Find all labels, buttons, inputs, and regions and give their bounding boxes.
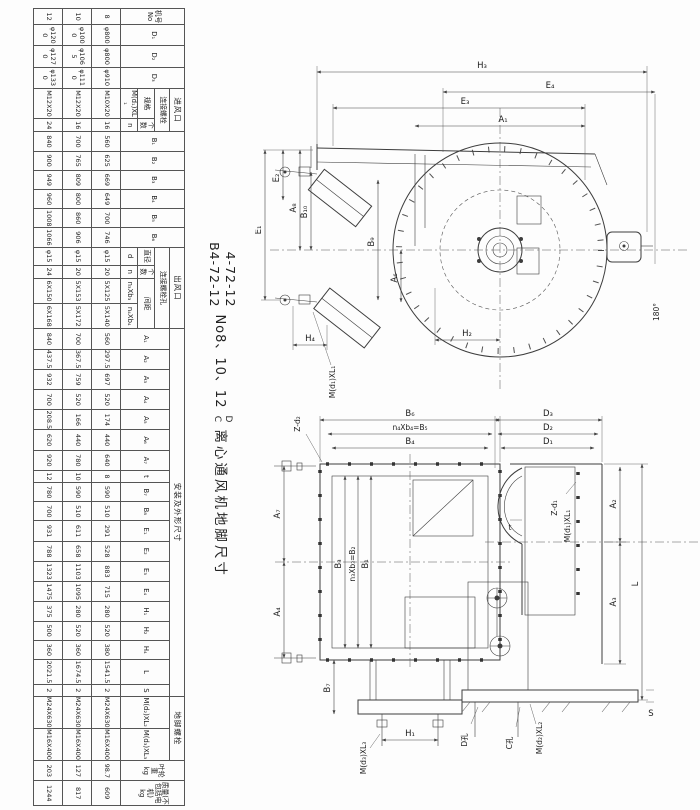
table-cell: 817 — [63, 781, 92, 806]
dim-label-b4: B₄ — [405, 437, 415, 447]
header-d: d — [121, 247, 138, 265]
table-cell: 700 — [34, 502, 63, 521]
table-cell: 715 — [92, 582, 121, 602]
table-cell: 6X168 — [34, 304, 63, 329]
header-dia: 直径 — [138, 247, 155, 265]
table-cell: φ15 — [63, 247, 92, 265]
header-inlet-bolts: 连接螺栓 — [154, 88, 169, 131]
side-view-inlet — [485, 464, 698, 664]
header-a5: A₅ — [121, 410, 169, 430]
dim-label-h2: H₂ — [462, 329, 472, 339]
table-cell: 700 — [63, 132, 92, 151]
table-cell: φ1330 — [34, 67, 63, 88]
angle-label-180: 180° — [652, 303, 661, 321]
table-cell: φ800 — [92, 46, 121, 67]
table-cell: 1475 — [34, 582, 63, 602]
header-m-d1: M(d₁)XL₁ — [121, 88, 138, 118]
section-outlet: 出风口 — [169, 247, 184, 329]
variant-letters: D C — [211, 415, 233, 422]
table-cell: 127 — [63, 761, 92, 781]
header-h4: H₄ — [121, 640, 169, 659]
table-cell: 932 — [34, 369, 63, 389]
table-cell: 611 — [63, 521, 92, 541]
table-cell: 12 — [34, 9, 63, 25]
header-n4b4: n₄Xb₄ — [121, 304, 138, 329]
table-cell: 800 — [63, 189, 92, 208]
header-mass: 质量(不包括电机)kg — [121, 781, 185, 806]
table-cell: 2 — [34, 685, 63, 696]
table-cell: 10 — [63, 9, 92, 25]
table-cell: 10 — [63, 470, 92, 482]
table-cell: 560 — [92, 132, 121, 151]
dim-label-b7: B₇ — [323, 683, 333, 693]
table-cell: φ15 — [92, 247, 121, 265]
dim-label-a3: A₃ — [609, 597, 619, 606]
bearing-block-and-base: D孔 C孔 M(d₂)XL₂ S — [460, 582, 654, 754]
table-cell: M16X400 — [34, 728, 63, 760]
dim-label-a1: A₁ — [498, 115, 507, 125]
table-cell: 883 — [92, 561, 121, 581]
table-cell: 5X153 — [63, 278, 92, 303]
dim-label-b2: n₃Xb₃=B₂ — [348, 546, 357, 581]
hole-label-d: D孔 — [460, 733, 469, 747]
header-d1: D₁ — [121, 25, 185, 46]
header-a3: A₃ — [121, 369, 169, 389]
table-cell: M12X20 — [63, 88, 92, 118]
bolt-label-md1: M(d₁)XL₁ — [328, 366, 337, 398]
table-cell: φ1065 — [63, 46, 92, 67]
table-cell: 590 — [92, 483, 121, 502]
header-b1: B₁ — [121, 132, 185, 151]
header-a2: A₂ — [121, 349, 169, 369]
fan-installation-drawing: B₆ n₄Xb₄=B₅ B₄ Z-d₂ A₇ A₄ B₃ n₃Xb₃=B₂ B₁… — [270, 402, 700, 802]
dim-label-d1: D₁ — [543, 437, 553, 447]
support-legs-foundation-left: B₇ H₁ M(d₃)XL₃ — [323, 660, 462, 774]
table-cell: 590 — [63, 483, 92, 502]
table-cell: 1066 — [34, 228, 63, 247]
header-e4: E₄ — [121, 582, 169, 602]
hole-label-c: C孔 — [505, 736, 514, 749]
foundation-dimension-table: 机号No D₁ D₂ D₃ 进风口 B₁ B₂ B₃ B₄ B₅ B₆ 出风口 … — [33, 8, 185, 806]
table-cell: 20 — [63, 265, 92, 278]
table-cell: 24 — [34, 119, 63, 132]
fan-model-1: 4-72-12 — [222, 252, 238, 308]
table-cell: 12 — [34, 470, 63, 482]
dim-label-b6: B₆ — [405, 409, 415, 419]
table-cell: 280 — [63, 602, 92, 621]
fan-model-2: B4-72-12 — [206, 242, 222, 307]
table-row-no8: 8φ800φ800φ910M10X2016560625669649700746φ… — [92, 9, 121, 806]
table-cell: 5X172 — [63, 304, 92, 329]
table-cell: 5X125 — [92, 278, 121, 303]
header-a6: A₆ — [121, 430, 169, 450]
table-cell: φ1110 — [63, 67, 92, 88]
table-cell: 2 — [92, 685, 121, 696]
table-cell: 375 — [34, 602, 63, 621]
table-cell: 788 — [34, 541, 63, 561]
table-cell: 2021.5 — [34, 659, 63, 684]
header-b6: B₆ — [121, 228, 185, 247]
bolt-label-md3: M(d₃)XL₃ — [359, 742, 368, 774]
table-cell: 780 — [63, 450, 92, 470]
header-h1: H₁ — [121, 602, 169, 621]
dim-label-d3: D₃ — [543, 409, 553, 419]
table-cell: M16X400 — [63, 728, 92, 760]
table-cell: 960 — [34, 189, 63, 208]
fan-size-list: No8、10、12 — [213, 314, 232, 408]
header-n: n — [121, 119, 138, 132]
dim-label-a2: A₂ — [609, 499, 619, 508]
table-cell: M24X630 — [92, 696, 121, 728]
page-title: 离心通风机地脚尺寸 — [212, 429, 232, 578]
table-cell: 1095 — [63, 582, 92, 602]
table-cell: 6X150 — [34, 278, 63, 303]
table-cell: 700 — [34, 390, 63, 410]
table-cell: 291 — [92, 521, 121, 541]
table-cell: 520 — [63, 390, 92, 410]
table-cell: 203 — [34, 761, 63, 781]
dim-label-b10: B₁₀ — [300, 205, 310, 218]
dim-label-e3: E₃ — [461, 97, 470, 107]
table-cell: 2 — [63, 685, 92, 696]
table-cell: φ1000 — [63, 25, 92, 46]
table-cell: 649 — [92, 189, 121, 208]
table-cell: 520 — [63, 621, 92, 640]
header-l: L — [121, 659, 169, 684]
table-cell: 640 — [92, 450, 121, 470]
table-cell: 840 — [34, 132, 63, 151]
table-cell: 746 — [92, 228, 121, 247]
table-cell: 560 — [92, 329, 121, 349]
table-cell: 16 — [92, 119, 121, 132]
table-cell: 765 — [63, 151, 92, 170]
fan-scroll-side-view-drawing: H₃ E₄ E₃ A₁ E₂ A₈ E₁ B₁₀ B₉ A₆ H₄ M(d₁)X… — [255, 50, 700, 400]
header-m-d3: M(d₃)XL₃ — [121, 728, 169, 760]
dim-label-l: L — [631, 581, 641, 586]
table-cell: 510 — [92, 502, 121, 521]
bolt-label-md1-b: M(d₁)XL₁ — [563, 510, 572, 542]
table-cell: 1541.5 — [92, 659, 121, 684]
header-e3: E₃ — [121, 561, 169, 581]
header-b5: B₅ — [121, 209, 185, 228]
table-cell: 1244 — [34, 781, 63, 806]
table-cell: 174 — [92, 410, 121, 430]
section-inlet: 进风口 — [169, 88, 184, 131]
table-cell: 840 — [34, 329, 63, 349]
table-cell: 920 — [34, 450, 63, 470]
header-outlet-holes: 连接螺栓孔 — [154, 247, 169, 329]
table-cell: φ1200 — [34, 25, 63, 46]
table-cell: 5X140 — [92, 304, 121, 329]
header-spec: 规格 — [138, 88, 155, 118]
header-s: S — [121, 685, 169, 696]
header-a1: A₁ — [121, 329, 169, 349]
table-cell: 906 — [63, 228, 92, 247]
table-cell: 520 — [92, 621, 121, 640]
header-b4: B₄ — [121, 189, 185, 208]
hole-label-zd1: Z-d₁ — [550, 500, 559, 515]
table-cell: 700 — [63, 329, 92, 349]
header-t: t — [121, 470, 169, 482]
table-cell: 510 — [63, 502, 92, 521]
dim-label-t: t — [509, 523, 512, 532]
table-cell: 380 — [92, 640, 121, 659]
table-cell: 98.7 — [92, 761, 121, 781]
table-cell: 437.5 — [34, 349, 63, 369]
table-cell: M24X630 — [34, 696, 63, 728]
scroll-housing — [270, 108, 687, 392]
table-cell: 900 — [34, 151, 63, 170]
dim-label-s: S — [648, 709, 653, 719]
dim-label-b9: B₉ — [367, 237, 377, 247]
header-a7: A₇ — [121, 450, 169, 470]
table-cell: 8 — [92, 470, 121, 482]
dim-label-h4: H₄ — [305, 334, 315, 344]
variant-d: D — [222, 415, 233, 422]
table-cell: 669 — [92, 170, 121, 189]
table-cell: 1103 — [63, 561, 92, 581]
section-install: 安装及外形尺寸 — [169, 329, 184, 696]
table-cell: 280 — [92, 602, 121, 621]
dim-label-b3: B₃ — [334, 559, 344, 568]
dim-label-a7: A₇ — [273, 509, 283, 519]
side-view-dimensions: D₃ D₂ D₁ Z-d₁ M(d₁)XL₁ t A₂ A₃ L — [495, 409, 648, 700]
dim-label-h3: H₃ — [477, 61, 487, 71]
table-cell: 528 — [92, 541, 121, 561]
header-b8: B₈ — [121, 502, 169, 521]
table-cell: 500 — [34, 621, 63, 640]
header-a4: A₄ — [121, 390, 169, 410]
table-cell: 1674.5 — [63, 659, 92, 684]
header-count2: 个数 — [138, 265, 155, 278]
table-cell: φ1270 — [34, 46, 63, 67]
table-cell: 609 — [92, 781, 121, 806]
table-cell: M12X20 — [34, 88, 63, 118]
table-cell: 620 — [34, 430, 63, 450]
header-jihao: 机号No — [121, 9, 185, 25]
header-n3b3: n₃Xb₃ — [121, 278, 138, 303]
dim-label-a4: A₄ — [273, 607, 283, 617]
table-cell: 440 — [92, 430, 121, 450]
dim-label-e1: E₁ — [255, 226, 264, 235]
header-h2: H₂ — [121, 621, 169, 640]
table-cell: 520 — [92, 390, 121, 410]
table-cell: 16 — [63, 119, 92, 132]
header-n2: n — [121, 265, 138, 278]
table-cell: 24 — [34, 265, 63, 278]
support-brackets — [275, 167, 380, 348]
variant-c: C — [211, 416, 222, 422]
dim-label-b5: n₄Xb₄=B₅ — [392, 423, 427, 432]
table-cell: 367.5 — [63, 349, 92, 369]
header-b3: B₃ — [121, 170, 185, 189]
dim-label-a8: A₈ — [289, 203, 299, 213]
rear-view-frame — [275, 454, 512, 670]
right-bracket — [607, 94, 655, 264]
table-cell: 360 — [63, 640, 92, 659]
header-impeller-weight: 叶轮重kg — [121, 761, 185, 781]
rear-view-dimensions: B₆ n₄Xb₄=B₅ B₄ Z-d₂ A₇ A₄ B₃ n₃Xb₃=B₂ B₁ — [273, 409, 500, 658]
table-cell: 360 — [34, 640, 63, 659]
catalog-page: { "title": { "model1": "4-72-12", "model… — [0, 0, 700, 810]
table-cell: 1323 — [34, 561, 63, 581]
dim-label-h1: H₁ — [405, 729, 415, 739]
table-cell: 20 — [92, 265, 121, 278]
header-b7: B₇ — [121, 483, 169, 502]
table-cell: 949 — [34, 170, 63, 189]
header-d2: D₂ — [121, 46, 185, 67]
table-cell: 700 — [92, 209, 121, 228]
table-cell: 8 — [92, 9, 121, 25]
dim-label-e4: E₄ — [546, 81, 555, 91]
table-cell: φ800 — [92, 25, 121, 46]
fan-model-numbers: 4-72-12 B4-72-12 — [206, 242, 237, 307]
header-e2: E₂ — [121, 541, 169, 561]
title-block: 4-72-12 B4-72-12 No8、10、12 D C 离心通风机地脚尺寸 — [186, 225, 258, 595]
header-m-d2: M(d₂)XL₂ — [121, 696, 169, 728]
foundation-dimension-table-block: 机号No D₁ D₂ D₃ 进风口 B₁ B₂ B₃ B₄ B₅ B₆ 出风口 … — [33, 8, 185, 806]
table-cell: 625 — [92, 151, 121, 170]
dim-label-b1: B₁ — [361, 559, 371, 568]
dimensions-top-view: H₃ E₄ E₃ A₁ E₂ A₈ E₁ B₁₀ B₉ A₆ H₄ M(d₁)X… — [255, 61, 661, 398]
table-cell: 931 — [34, 521, 63, 541]
table-cell: M24X630 — [63, 696, 92, 728]
bolt-label-md2: M(d₂)XL₂ — [535, 722, 544, 754]
table-cell: 809 — [63, 170, 92, 189]
table-cell: φ910 — [92, 67, 121, 88]
table-cell: φ15 — [34, 247, 63, 265]
table-cell: 1008 — [34, 209, 63, 228]
dim-label-d2: D₂ — [543, 423, 553, 433]
section-anchor-bolt: 地脚螺栓 — [169, 696, 184, 761]
header-d3: D₃ — [121, 67, 185, 88]
dim-label-e2: E₂ — [272, 174, 282, 183]
table-cell: M16X400 — [92, 728, 121, 760]
table-cell: 780 — [34, 483, 63, 502]
table-cell: 860 — [63, 209, 92, 228]
header-spacing: 间距 — [138, 278, 155, 329]
table-cell: 697 — [92, 369, 121, 389]
header-b2: B₂ — [121, 151, 185, 170]
header-count: 个数 — [138, 119, 155, 132]
hole-label-zd2: Z-d₂ — [293, 416, 302, 431]
table-cell: 297.5 — [92, 349, 121, 369]
table-cell: 759 — [63, 369, 92, 389]
table-cell: 208.5 — [34, 410, 63, 430]
header-e1: E₁ — [121, 521, 169, 541]
table-cell: M10X20 — [92, 88, 121, 118]
table-row-no10: 10φ1000φ1065φ1110M12X2016700765809800860… — [63, 9, 92, 806]
table-row-no12: 12φ1200φ1270φ1330M12X2024840900949960100… — [34, 9, 63, 806]
table-cell: 658 — [63, 541, 92, 561]
table-cell: 166 — [63, 410, 92, 430]
table-cell: 440 — [63, 430, 92, 450]
dim-label-a6: A₆ — [390, 273, 400, 283]
